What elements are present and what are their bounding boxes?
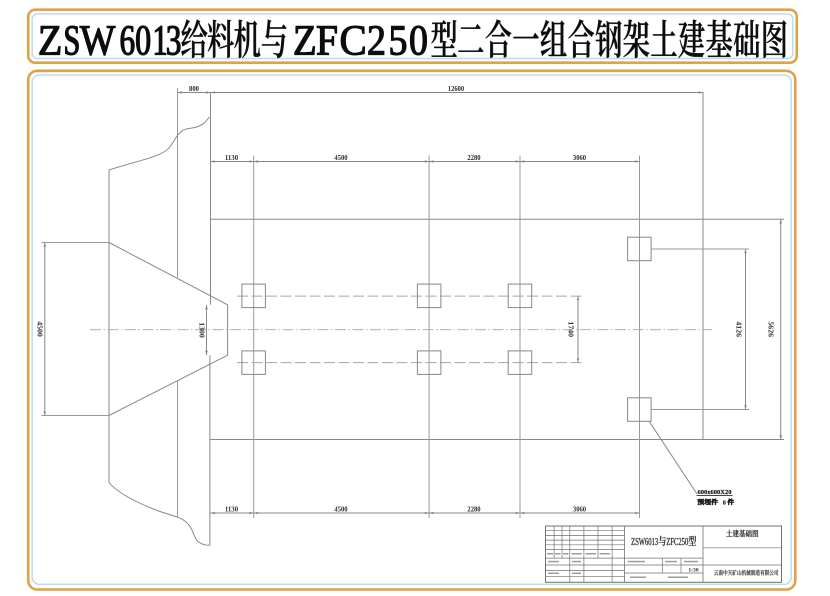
svg-text:600x600X20: 600x600X20 <box>698 489 732 496</box>
svg-text:2280: 2280 <box>467 153 480 162</box>
svg-text:8: 8 <box>723 499 726 506</box>
svg-text:1130: 1130 <box>225 153 238 162</box>
svg-text:1300: 1300 <box>197 322 206 338</box>
svg-text:4126: 4126 <box>734 321 743 337</box>
svg-text:800: 800 <box>189 84 199 93</box>
svg-text:4500: 4500 <box>334 505 347 514</box>
svg-text:3060: 3060 <box>573 153 586 162</box>
svg-text:4500: 4500 <box>35 321 44 337</box>
svg-text:12600: 12600 <box>448 84 464 93</box>
svg-text:3060: 3060 <box>573 505 586 514</box>
svg-text:2280: 2280 <box>467 505 480 514</box>
svg-text:1740: 1740 <box>567 321 576 337</box>
svg-text:4500: 4500 <box>334 153 347 162</box>
svg-text:5626: 5626 <box>767 321 776 337</box>
svg-text:1130: 1130 <box>225 505 238 514</box>
svg-text:1:30: 1:30 <box>688 568 698 574</box>
